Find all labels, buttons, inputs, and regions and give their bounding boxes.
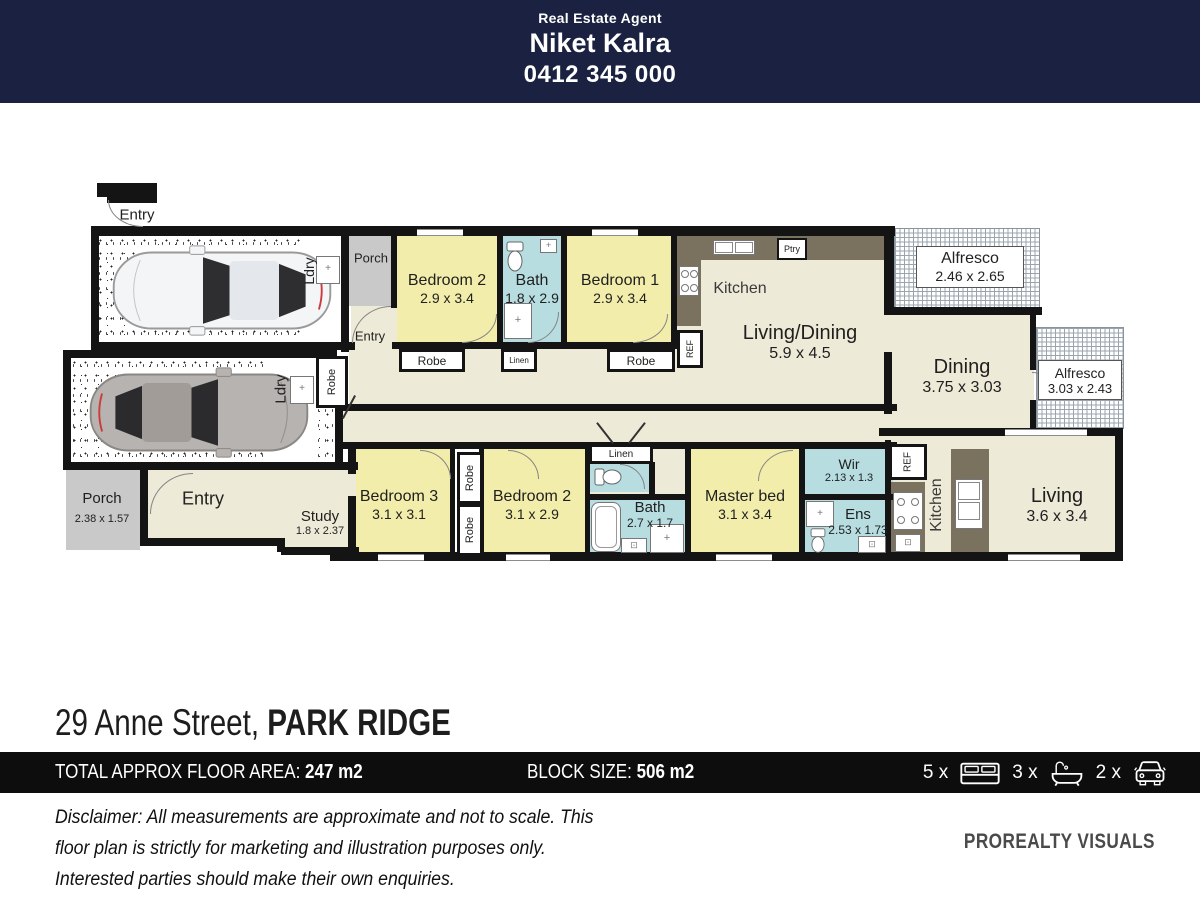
cooktop	[893, 492, 923, 530]
floor-area: TOTAL APPROX FLOOR AREA: 247 m2	[55, 752, 363, 793]
room-label-wir: Wir2.13 x 1.3	[825, 456, 873, 484]
pantry-box: Ptry	[777, 238, 807, 260]
wall	[671, 236, 677, 342]
wall	[341, 228, 349, 352]
wall	[561, 236, 567, 342]
disclaimer-text: Disclaimer: All measurements are approxi…	[55, 803, 624, 895]
fridge-space: REF	[677, 330, 703, 368]
bed-icon	[959, 759, 1001, 787]
wall	[335, 404, 343, 470]
wall	[140, 462, 358, 470]
wall	[140, 462, 148, 546]
shower: ⊡	[858, 536, 886, 553]
window	[716, 554, 772, 561]
wall	[685, 442, 691, 558]
agent-tagline: Real Estate Agent	[0, 10, 1200, 26]
wall	[63, 350, 71, 468]
agent-phone: 0412 345 000	[0, 61, 1200, 89]
wall	[97, 183, 157, 197]
branding-logo: PROREALTY VISUALS	[964, 830, 1155, 854]
wall	[348, 496, 356, 558]
room-label-bath-bottom: Bath2.7 x 1.7	[627, 499, 673, 530]
window	[378, 554, 424, 561]
wall	[1115, 428, 1123, 560]
floor-area-label: TOTAL APPROX FLOOR AREA:	[55, 761, 305, 783]
car-icon	[1132, 759, 1168, 787]
alfresco-top-label: Alfresco 2.46 x 2.65	[916, 246, 1024, 288]
wall	[91, 226, 895, 236]
vanity-sink: +	[540, 239, 557, 253]
window	[1005, 429, 1087, 436]
robe-box: Robe	[607, 349, 675, 372]
room-label-dining: Dining3.75 x 3.03	[922, 356, 1001, 397]
cars-count: 2 x	[1096, 762, 1121, 784]
room-name: Alfresco	[1055, 365, 1106, 381]
wall	[884, 226, 894, 313]
wall	[392, 342, 678, 349]
wall	[63, 350, 337, 358]
room-name: Alfresco	[941, 250, 999, 268]
address-street: 29 Anne Street,	[55, 702, 267, 743]
address-suburb: PARK RIDGE	[267, 702, 451, 743]
wall	[799, 449, 805, 554]
window	[506, 554, 550, 561]
room-label-living-dining: Living/Dining5.9 x 4.5	[743, 322, 858, 363]
pantry-label: Ptry	[784, 244, 800, 254]
linen-box: Linen	[501, 349, 537, 372]
wall	[91, 226, 99, 348]
toilet	[594, 464, 622, 490]
entry-label-unit-b: Entry	[182, 489, 224, 510]
toilet	[808, 528, 828, 554]
room-label-study: Study1.8 x 2.37	[296, 508, 344, 537]
room-label-bedroom2-bottom: Bedroom 23.1 x 2.9	[493, 488, 571, 522]
wall	[450, 449, 455, 554]
feature-counts: 5 x 3 x 2 x	[923, 752, 1168, 793]
robe-box: Robe	[457, 504, 483, 556]
ref-label: REF	[903, 452, 914, 472]
room-label-master-bed: Master bed3.1 x 3.4	[705, 488, 785, 522]
bathtub	[591, 502, 621, 552]
agent-name: Niket Kalra	[0, 28, 1200, 59]
laundry-tub: +	[316, 256, 340, 284]
kitchen-sink	[713, 240, 755, 255]
toilet	[505, 241, 525, 273]
flyer-page: Real Estate Agent Niket Kalra 0412 345 0…	[0, 0, 1200, 900]
wall	[335, 404, 897, 411]
vanity-sink: ⊡	[621, 538, 647, 553]
room-label-kitchen-top: Kitchen	[713, 280, 766, 298]
robe-label: Robe	[326, 369, 338, 395]
room-label-porch-top: Porch	[354, 251, 388, 266]
entry-label-unit-a: Entry	[355, 329, 385, 344]
wall	[799, 494, 893, 500]
laundry-tub: +	[290, 376, 314, 404]
robe-nook: Robe	[316, 356, 348, 408]
wall	[140, 538, 283, 546]
robe-box: Robe	[399, 349, 465, 372]
wall	[91, 342, 355, 350]
robe-label: Robe	[627, 354, 656, 368]
linen-box: Linen	[589, 444, 653, 464]
island-sink	[955, 479, 983, 529]
oven: ⊡	[895, 534, 921, 552]
wall	[585, 449, 590, 554]
window	[592, 229, 638, 236]
room-label-bedroom3: Bedroom 33.1 x 3.1	[360, 488, 438, 522]
info-bar: TOTAL APPROX FLOOR AREA: 247 m2 BLOCK SI…	[0, 752, 1200, 793]
wall	[391, 228, 397, 308]
ref-label: REF	[685, 340, 695, 358]
bath-icon	[1049, 759, 1085, 787]
fridge-space: REF	[889, 444, 927, 480]
room-label-bedroom1: Bedroom 12.9 x 3.4	[581, 272, 659, 306]
block-size-label: BLOCK SIZE:	[527, 761, 637, 783]
property-address: 29 Anne Street, PARK RIDGE	[55, 702, 451, 744]
linen-label: Linen	[609, 449, 633, 460]
hallway-floor	[335, 410, 895, 446]
floor-area-value: 247 m2	[305, 761, 363, 783]
robe-box: Robe	[457, 452, 483, 504]
room-label-bath-top: Bath1.8 x 2.9	[505, 272, 559, 306]
laundry-label-bottom: Ldry	[273, 374, 290, 403]
wall	[649, 462, 655, 494]
robe-label: Robe	[464, 465, 476, 491]
porch-top	[349, 228, 393, 306]
agent-header: Real Estate Agent Niket Kalra 0412 345 0…	[0, 0, 1200, 103]
wall	[348, 442, 356, 474]
room-label-ens: Ens2.53 x 1.73	[828, 506, 887, 537]
room-label-bedroom2-top: Bedroom 22.9 x 3.4	[408, 272, 486, 306]
alfresco-right-label: Alfresco 3.03 x 2.43	[1038, 360, 1122, 400]
beds-count: 5 x	[923, 762, 948, 784]
entry-label-garage: Entry	[119, 207, 154, 224]
room-label-kitchen-bottom: Kitchen	[928, 478, 946, 531]
room-label-porch-bottom: Porch2.38 x 1.57	[75, 490, 129, 525]
window	[1008, 554, 1080, 561]
linen-label: Linen	[509, 356, 529, 365]
wall	[497, 236, 503, 342]
cooktop	[679, 266, 699, 296]
laundry-label-top: Ldry	[301, 257, 317, 284]
room-dims: 3.03 x 2.43	[1048, 381, 1112, 396]
room-dims: 2.46 x 2.65	[935, 268, 1004, 284]
robe-label: Robe	[464, 517, 476, 543]
wall	[1030, 315, 1036, 370]
baths-count: 3 x	[1012, 762, 1037, 784]
robe-label: Robe	[418, 354, 447, 368]
window	[417, 229, 463, 236]
wall	[884, 307, 1042, 315]
block-size: BLOCK SIZE: 506 m2	[527, 752, 694, 793]
room-label-living: Living3.6 x 3.4	[1026, 485, 1087, 526]
block-size-value: 506 m2	[637, 761, 695, 783]
